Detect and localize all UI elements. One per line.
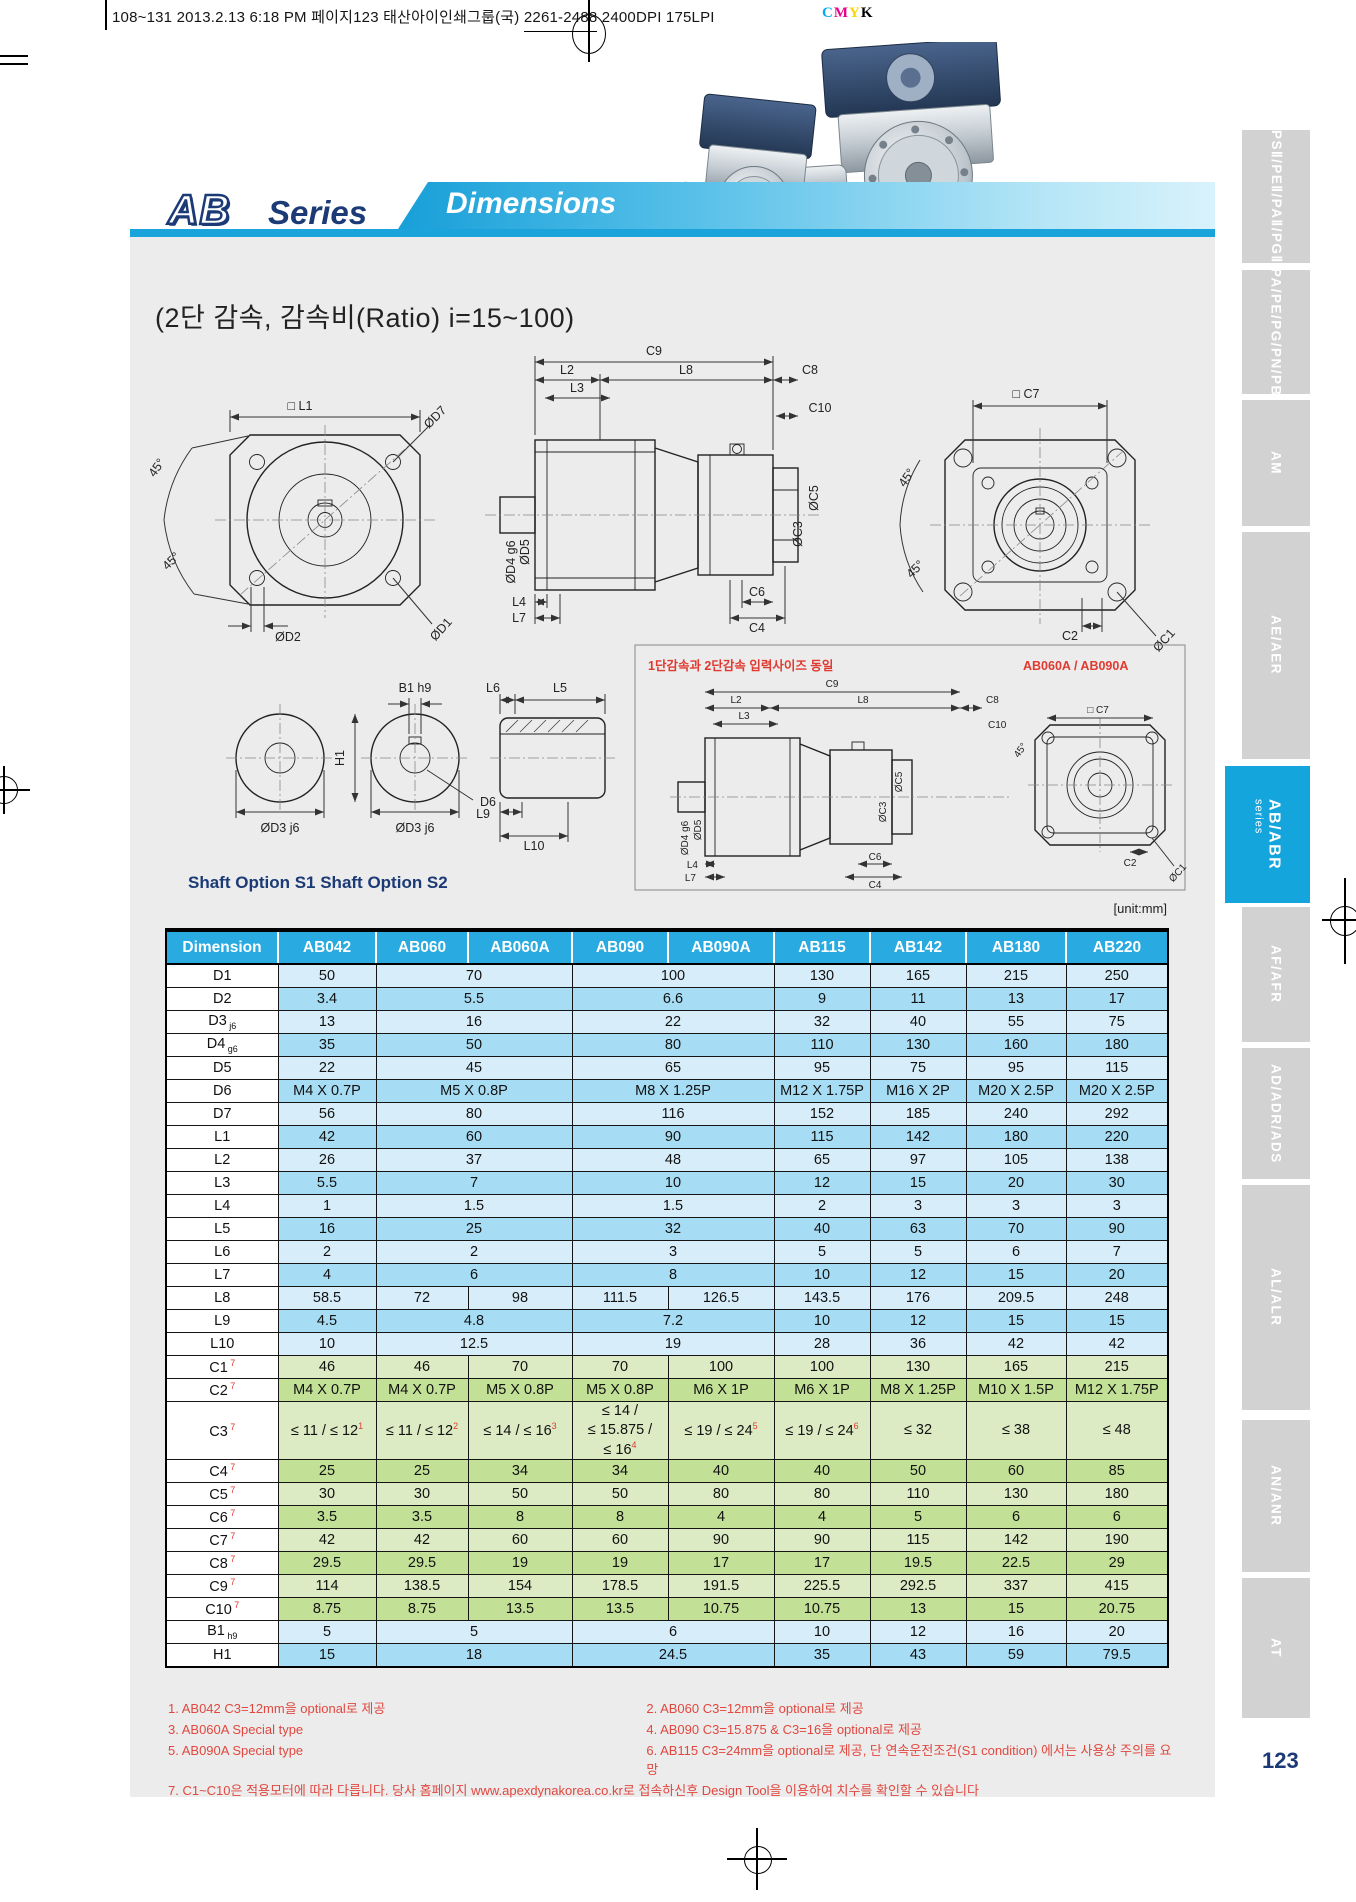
table-row-c10: C10 78.758.7513.513.510.7510.75131520.75 <box>166 1598 1168 1621</box>
table-row-l10: L101012.51928364242 <box>166 1333 1168 1356</box>
table-cell: 17 <box>774 1552 870 1575</box>
table-cell: 37 <box>376 1149 572 1172</box>
table-cell: 154 <box>468 1575 572 1598</box>
red-note-models: AB060A / AB090A <box>1023 659 1128 673</box>
print-header-dpi: 2400DPI 175LPI <box>597 9 714 26</box>
table-cell: 7 <box>376 1172 572 1195</box>
table-cell: 165 <box>966 1356 1066 1379</box>
table-row-l3: L35.571012152030 <box>166 1172 1168 1195</box>
brand-strip <box>130 229 1215 237</box>
table-row-c4: C4 7252534344040506085 <box>166 1460 1168 1483</box>
table-cell: 114 <box>278 1575 376 1598</box>
table-row-l9: L94.54.87.210121515 <box>166 1310 1168 1333</box>
table-cell: 130 <box>870 1034 966 1057</box>
red-note-text: 1단감속과 2단감속 입력사이즈 동일 <box>648 658 833 673</box>
svg-text:ØD1: ØD1 <box>427 615 455 644</box>
table-row-d4: D4 g6355080110130160180 <box>166 1034 1168 1057</box>
row-label-c7: C7 7 <box>166 1529 278 1552</box>
table-cell: 5.5 <box>278 1172 376 1195</box>
table-cell: 13 <box>870 1598 966 1621</box>
svg-text:H1: H1 <box>333 750 347 766</box>
dimensions-table: DimensionAB042AB060AB060AAB090AB090AAB11… <box>165 928 1169 1668</box>
svg-text:□ L1: □ L1 <box>288 399 313 413</box>
table-cell: 116 <box>572 1103 774 1126</box>
svg-text:L2: L2 <box>560 363 574 377</box>
table-cell: 30 <box>278 1483 376 1506</box>
table-cell: 80 <box>774 1483 870 1506</box>
table-cell: 50 <box>468 1483 572 1506</box>
table-cell: 3.5 <box>376 1506 468 1529</box>
table-row-l7: L746810121520 <box>166 1264 1168 1287</box>
table-cell: M6 X 1P <box>774 1379 870 1402</box>
table-cell: 15 <box>966 1310 1066 1333</box>
table-cell: 5 <box>870 1506 966 1529</box>
table-cell: 22 <box>572 1011 774 1034</box>
sidebar-tab-label: AB/ABRseries <box>1253 799 1283 870</box>
table-cell: 248 <box>1066 1287 1168 1310</box>
table-cell: 16 <box>278 1218 376 1241</box>
table-cell: 138 <box>1066 1149 1168 1172</box>
table-row-c8: C8 729.529.51919171719.522.529 <box>166 1552 1168 1575</box>
svg-text:C8: C8 <box>802 363 818 377</box>
table-cell: 6 <box>1066 1506 1168 1529</box>
svg-text:L10: L10 <box>524 839 545 853</box>
table-cell: 95 <box>966 1057 1066 1080</box>
table-cell: 19 <box>572 1552 668 1575</box>
sidebar-tab-sublabel: series <box>1253 799 1265 870</box>
svg-text:L3: L3 <box>738 711 750 722</box>
row-label-h1: H1 <box>166 1644 278 1668</box>
svg-text:C8: C8 <box>986 695 999 706</box>
table-cell: 80 <box>376 1103 572 1126</box>
table-cell: 165 <box>870 964 966 988</box>
table-cell: 22 <box>278 1057 376 1080</box>
table-cell: M10 X 1.5P <box>966 1379 1066 1402</box>
svg-text:ØD2: ØD2 <box>275 630 301 644</box>
table-cell: 90 <box>572 1126 774 1149</box>
table-cell: ≤ 38 <box>966 1402 1066 1460</box>
table-cell: 11 <box>870 988 966 1011</box>
row-label-c9: C9 7 <box>166 1575 278 1598</box>
table-cell: 59 <box>966 1644 1066 1668</box>
table-cell: 18 <box>376 1644 572 1668</box>
table-cell: 7.2 <box>572 1310 774 1333</box>
table-cell: 115 <box>870 1529 966 1552</box>
table-cell: 105 <box>966 1149 1066 1172</box>
table-cell: 70 <box>468 1356 572 1379</box>
svg-text:ØC5: ØC5 <box>807 485 821 511</box>
row-label-l1: L1 <box>166 1126 278 1149</box>
table-cell: 29 <box>1066 1552 1168 1575</box>
table-cell: 115 <box>774 1126 870 1149</box>
table-cell: 46 <box>278 1356 376 1379</box>
table-cell: 337 <box>966 1575 1066 1598</box>
table-cell: 19.5 <box>870 1552 966 1575</box>
table-cell: 111.5 <box>572 1287 668 1310</box>
table-cell: 3 <box>1066 1195 1168 1218</box>
row-label-l9: L9 <box>166 1310 278 1333</box>
table-cell: 80 <box>572 1034 774 1057</box>
table-header-ab060: AB060 <box>376 930 468 964</box>
table-cell: 1.5 <box>572 1195 774 1218</box>
row-label-c8: C8 7 <box>166 1552 278 1575</box>
sidebar-tab-label: AN/ANR <box>1269 1465 1284 1527</box>
svg-text:45°: 45° <box>1012 741 1030 760</box>
table-cell: 209.5 <box>966 1287 1066 1310</box>
table-cell: 22.5 <box>966 1552 1066 1575</box>
table-cell: ≤ 19 / ≤ 246 <box>774 1402 870 1460</box>
table-cell: 42 <box>278 1529 376 1552</box>
table-cell: 48 <box>572 1149 774 1172</box>
shaft-option-drawings: ØD3 j6 H1 B1 h9 ØD3 j6 D6 <box>188 681 618 892</box>
table-cell: 19 <box>468 1552 572 1575</box>
table-cell: 5 <box>376 1621 572 1644</box>
svg-text:ØD4 g6: ØD4 g6 <box>504 540 518 583</box>
table-cell: 8 <box>572 1506 668 1529</box>
dimensions-banner: Dimensions <box>398 182 1215 229</box>
table-cell: 42 <box>966 1333 1066 1356</box>
svg-text:□ C7: □ C7 <box>1087 705 1109 716</box>
row-label-d5: D5 <box>166 1057 278 1080</box>
table-cell: 3 <box>572 1241 774 1264</box>
svg-text:L7: L7 <box>685 873 697 884</box>
table-row-l4: L411.51.52333 <box>166 1195 1168 1218</box>
table-cell: 415 <box>1066 1575 1168 1598</box>
series-logo-ab: AB <box>168 186 231 234</box>
table-cell: 3 <box>870 1195 966 1218</box>
table-cell: 1.5 <box>376 1195 572 1218</box>
unit-note: [unit:mm] <box>1000 901 1167 916</box>
table-cell: 2 <box>774 1195 870 1218</box>
table-cell: 5.5 <box>376 988 572 1011</box>
table-cell: 35 <box>278 1034 376 1057</box>
row-label-c6: C6 7 <box>166 1506 278 1529</box>
table-cell: 28 <box>774 1333 870 1356</box>
table-row-d1: D15070100130165215250 <box>166 964 1168 988</box>
table-cell: 13.5 <box>572 1598 668 1621</box>
table-cell: M5 X 0.8P <box>468 1379 572 1402</box>
footnote-7: 7. C1~C10은 적용모터에 따라 다릅니다. 당사 홈페이지 www.ap… <box>168 1782 1179 1800</box>
table-cell: 75 <box>870 1057 966 1080</box>
table-cell: 15 <box>1066 1310 1168 1333</box>
table-cell: 15 <box>870 1172 966 1195</box>
table-cell: M5 X 0.8P <box>376 1080 572 1103</box>
table-cell: 6 <box>572 1621 774 1644</box>
table-cell: 6 <box>966 1241 1066 1264</box>
sidebar-tab-ad-adr-ads: AD/ADR/ADS <box>1242 1048 1310 1179</box>
table-cell: 55 <box>966 1011 1066 1034</box>
table-cell: 3.4 <box>278 988 376 1011</box>
table-cell: 25 <box>278 1460 376 1483</box>
sidebar-tab-label: AE/AER <box>1269 615 1284 675</box>
table-cell: 70 <box>376 964 572 988</box>
table-cell: 5 <box>870 1241 966 1264</box>
sidebar-tab-ps-pe-pa-pg-: PSⅡ/PEⅡ/PAⅡ/PGⅡ <box>1242 130 1310 263</box>
table-cell: 8 <box>572 1264 774 1287</box>
table-row-d7: D75680116152185240292 <box>166 1103 1168 1126</box>
cmyk-letter: Y <box>849 5 861 21</box>
cmyk-letter: K <box>861 5 874 21</box>
table-cell: M4 X 0.7P <box>278 1379 376 1402</box>
table-cell: 115 <box>1066 1057 1168 1080</box>
table-cell: 36 <box>870 1333 966 1356</box>
table-cell: 90 <box>774 1529 870 1552</box>
table-cell: 10 <box>774 1264 870 1287</box>
table-cell: 40 <box>774 1218 870 1241</box>
table-row-d2: D23.45.56.69111317 <box>166 988 1168 1011</box>
svg-text:ØD5: ØD5 <box>693 819 704 840</box>
table-cell: 90 <box>668 1529 774 1552</box>
table-cell: 142 <box>870 1126 966 1149</box>
svg-text:C9: C9 <box>826 679 839 690</box>
table-row-l1: L1426090115142180220 <box>166 1126 1168 1149</box>
print-header-text: 108~131 2013.2.13 6:18 PM 페이지123 태산아이인쇄그… <box>112 9 524 26</box>
table-cell: 42 <box>1066 1333 1168 1356</box>
table-cell: M5 X 0.8P <box>572 1379 668 1402</box>
table-cell: 46 <box>376 1356 468 1379</box>
svg-text:L2: L2 <box>730 695 742 706</box>
row-label-d1: D1 <box>166 964 278 988</box>
row-label-c2: C2 7 <box>166 1379 278 1402</box>
table-cell: 292 <box>1066 1103 1168 1126</box>
table-cell: 130 <box>774 964 870 988</box>
table-cell: 7 <box>1066 1241 1168 1264</box>
table-cell: 60 <box>468 1529 572 1552</box>
sidebar-tab-label: AT <box>1269 1638 1284 1658</box>
table-cell: 3.5 <box>278 1506 376 1529</box>
table-cell: 70 <box>572 1356 668 1379</box>
table-cell: 15 <box>966 1598 1066 1621</box>
table-cell: 130 <box>870 1356 966 1379</box>
table-cell: 20 <box>1066 1264 1168 1287</box>
row-label-l6: L6 <box>166 1241 278 1264</box>
sidebar-tab-label: AD/ADR/ADS <box>1269 1064 1284 1164</box>
table-header-ab060a: AB060A <box>468 930 572 964</box>
svg-text:C9: C9 <box>646 344 662 358</box>
catalog-page: 108~131 2013.2.13 6:18 PM 페이지123 태산아이인쇄그… <box>0 0 1356 1902</box>
table-cell: 34 <box>468 1460 572 1483</box>
svg-text:B1 h9: B1 h9 <box>399 681 432 695</box>
table-cell: 29.5 <box>278 1552 376 1575</box>
table-cell: 12 <box>870 1310 966 1333</box>
table-row-c1: C1 746467070100100130165215 <box>166 1356 1168 1379</box>
table-cell: 8.75 <box>278 1598 376 1621</box>
table-header-ab090: AB090 <box>572 930 668 964</box>
table-cell: 95 <box>774 1057 870 1080</box>
table-cell: 60 <box>966 1460 1066 1483</box>
svg-text:L4: L4 <box>687 860 699 871</box>
svg-text:C10: C10 <box>809 401 832 415</box>
cmyk-letter: M <box>834 5 849 21</box>
svg-text:□ C7: □ C7 <box>1012 387 1039 401</box>
table-cell: 191.5 <box>668 1575 774 1598</box>
svg-text:L8: L8 <box>679 363 693 377</box>
table-row-c9: C9 7114138.5154178.5191.5225.5292.533741… <box>166 1575 1168 1598</box>
table-header-ab090a: AB090A <box>668 930 774 964</box>
row-label-c5: C5 7 <box>166 1483 278 1506</box>
table-cell: 50 <box>870 1460 966 1483</box>
row-label-b1: B1 h9 <box>166 1621 278 1644</box>
table-cell: 25 <box>376 1460 468 1483</box>
table-cell: 12 <box>870 1264 966 1287</box>
table-cell: 43 <box>870 1644 966 1668</box>
row-label-l3: L3 <box>166 1172 278 1195</box>
row-label-l8: L8 <box>166 1287 278 1310</box>
table-cell: 16 <box>966 1621 1066 1644</box>
table-cell: 72 <box>376 1287 468 1310</box>
table-cell: 160 <box>966 1034 1066 1057</box>
table-row-c3: C3 7≤ 11 / ≤ 121≤ 11 / ≤ 122≤ 14 / ≤ 163… <box>166 1402 1168 1460</box>
table-cell: 25 <box>376 1218 572 1241</box>
table-header-ab142: AB142 <box>870 930 966 964</box>
crop-mark-left-tick-2 <box>0 63 28 65</box>
table-cell: 65 <box>774 1149 870 1172</box>
table-cell: 4 <box>278 1264 376 1287</box>
print-header-phone: 2261-2488 <box>524 9 598 32</box>
table-cell: 3 <box>966 1195 1066 1218</box>
table-cell: 110 <box>870 1483 966 1506</box>
svg-text:45°: 45° <box>146 456 168 480</box>
table-cell: ≤ 32 <box>870 1402 966 1460</box>
table-cell: 40 <box>668 1460 774 1483</box>
table-cell: 4.8 <box>376 1310 572 1333</box>
row-label-c4: C4 7 <box>166 1460 278 1483</box>
svg-text:C2: C2 <box>1124 858 1137 869</box>
table-cell: M12 X 1.75P <box>1066 1379 1168 1402</box>
print-header: 108~131 2013.2.13 6:18 PM 페이지123 태산아이인쇄그… <box>112 6 715 27</box>
table-cell: 2 <box>376 1241 572 1264</box>
footnotes-grid: 1. AB042 C3=12mm을 optional로 제공2. AB060 C… <box>168 1700 1173 1800</box>
row-label-d4: D4 g6 <box>166 1034 278 1057</box>
svg-text:C2: C2 <box>1062 629 1078 643</box>
svg-text:ØD7: ØD7 <box>421 403 449 431</box>
sidebar-tab-an-anr: AN/ANR <box>1242 1420 1310 1572</box>
sidebar-tab-label: AF/AFR <box>1269 945 1284 1004</box>
table-cell: 138.5 <box>376 1575 468 1598</box>
svg-text:C4: C4 <box>749 621 765 635</box>
table-cell: ≤ 48 <box>1066 1402 1168 1460</box>
table-header-dimension: Dimension <box>166 930 278 964</box>
series-logo-word: Series <box>268 194 367 232</box>
crop-mark-left-tick-1 <box>0 55 28 57</box>
side-view-drawing: C9 L2 L8 C8 L3 C10 ØD4 g6 ØD5 ØC5 ØC3 L4… <box>485 344 832 635</box>
svg-text:ØC3: ØC3 <box>878 801 889 822</box>
page-number: 123 <box>1262 1748 1299 1774</box>
table-cell: M8 X 1.25P <box>870 1379 966 1402</box>
table-cell: 10 <box>572 1172 774 1195</box>
registration-mark-left <box>0 766 30 814</box>
row-label-l10: L10 <box>166 1333 278 1356</box>
svg-text:C10: C10 <box>988 720 1007 731</box>
table-cell: M16 X 2P <box>870 1080 966 1103</box>
table-row-c6: C6 73.53.58844566 <box>166 1506 1168 1529</box>
table-cell: 17 <box>668 1552 774 1575</box>
table-cell: 126.5 <box>668 1287 774 1310</box>
footnote-4: 4. AB090 C3=15.875 & C3=16을 optional로 제공 <box>646 1721 1179 1739</box>
table-cell: 220 <box>1066 1126 1168 1149</box>
table-cell: 13.5 <box>468 1598 572 1621</box>
row-label-l4: L4 <box>166 1195 278 1218</box>
sidebar-tab-label: PA/PE/PG/PN/PB <box>1269 268 1284 397</box>
table-cell: 20.75 <box>1066 1598 1168 1621</box>
table-cell: 240 <box>966 1103 1066 1126</box>
table-cell: 143.5 <box>774 1287 870 1310</box>
table-cell: ≤ 19 / ≤ 245 <box>668 1402 774 1460</box>
table-cell: 180 <box>1066 1483 1168 1506</box>
table-cell: 50 <box>572 1483 668 1506</box>
svg-text:ØC3: ØC3 <box>791 521 805 547</box>
table-cell: 10 <box>774 1310 870 1333</box>
table-cell: 4.5 <box>278 1310 376 1333</box>
page-subtitle: (2단 감속, 감속비(Ratio) i=15~100) <box>155 296 575 335</box>
table-cell: 4 <box>668 1506 774 1529</box>
svg-text:L4: L4 <box>512 595 526 609</box>
table-cell: 12.5 <box>376 1333 572 1356</box>
table-cell: 10.75 <box>774 1598 870 1621</box>
table-cell: 5 <box>278 1621 376 1644</box>
table-cell: M4 X 0.7P <box>278 1080 376 1103</box>
table-row-l5: L516253240637090 <box>166 1218 1168 1241</box>
table-cell: 6 <box>376 1264 572 1287</box>
table-cell: 10 <box>774 1621 870 1644</box>
svg-text:45°: 45° <box>160 550 183 573</box>
svg-text:C6: C6 <box>749 585 765 599</box>
table-cell: 9 <box>774 988 870 1011</box>
table-cell: 178.5 <box>572 1575 668 1598</box>
sidebar-tab-ae-aer: AE/AER <box>1242 532 1310 759</box>
table-cell: 32 <box>774 1011 870 1034</box>
table-cell: 215 <box>1066 1356 1168 1379</box>
front-view-drawing: □ L1 ØD7 45° 45° ØD2 ØD1 <box>146 399 455 644</box>
crop-mark-top-left <box>105 0 107 30</box>
table-cell: ≤ 11 / ≤ 122 <box>376 1402 468 1460</box>
svg-text:L8: L8 <box>857 695 869 706</box>
table-row-d6: D6M4 X 0.7PM5 X 0.8PM8 X 1.25PM12 X 1.75… <box>166 1080 1168 1103</box>
table-cell: 152 <box>774 1103 870 1126</box>
table-cell: 225.5 <box>774 1575 870 1598</box>
table-cell: 79.5 <box>1066 1644 1168 1668</box>
table-cell: 10.75 <box>668 1598 774 1621</box>
svg-text:L7: L7 <box>512 611 526 625</box>
table-cell: 65 <box>572 1057 774 1080</box>
shaft-options-title: Shaft Option S1 Shaft Option S2 <box>188 873 448 892</box>
table-cell: 90 <box>1066 1218 1168 1241</box>
rear-view-drawing: □ C7 45° 45° C2 ØC1 <box>896 387 1178 655</box>
table-cell: 190 <box>1066 1529 1168 1552</box>
red-note-box: 1단감속과 2단감속 입력사이즈 동일 AB060A / AB090A C9 L… <box>635 645 1189 891</box>
table-cell: ≤ 14 / ≤ 15.875 / ≤ 164 <box>572 1402 668 1460</box>
registration-mark-right <box>1322 878 1356 964</box>
table-header-ab042: AB042 <box>278 930 376 964</box>
table-cell: 100 <box>774 1356 870 1379</box>
table-header-ab115: AB115 <box>774 930 870 964</box>
svg-text:ØC1: ØC1 <box>1167 862 1189 885</box>
table-cell: 42 <box>376 1529 468 1552</box>
table-cell: 142 <box>966 1529 1066 1552</box>
svg-text:L3: L3 <box>570 381 584 395</box>
table-row-c5: C5 7303050508080110130180 <box>166 1483 1168 1506</box>
row-label-c10: C10 7 <box>166 1598 278 1621</box>
table-cell: 180 <box>1066 1034 1168 1057</box>
table-cell: 85 <box>1066 1460 1168 1483</box>
row-label-c3: C3 7 <box>166 1402 278 1460</box>
table-cell: 63 <box>870 1218 966 1241</box>
table-cell: 16 <box>376 1011 572 1034</box>
table-cell: 45 <box>376 1057 572 1080</box>
technical-drawings: □ L1 ØD7 45° 45° ØD2 ØD1 <box>130 340 1215 925</box>
table-cell: 130 <box>966 1483 1066 1506</box>
banner-title: Dimensions <box>446 187 616 221</box>
